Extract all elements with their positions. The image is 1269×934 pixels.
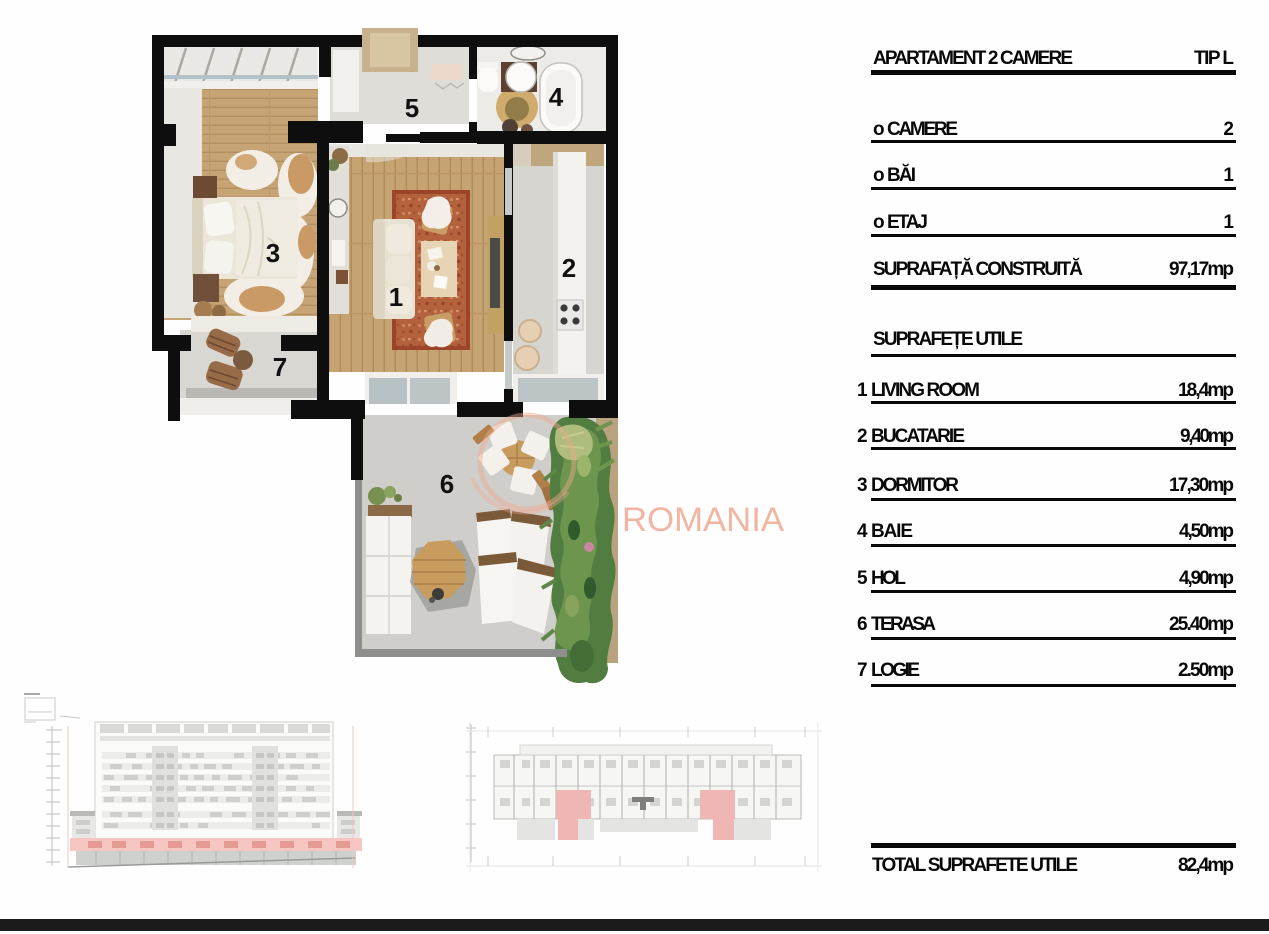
svg-text:o: o [873,119,885,140]
svg-text:4,50mp: 4,50mp [1179,521,1234,542]
svg-text:ROMANIA: ROMANIA [622,501,784,539]
svg-text:2: 2 [857,426,868,447]
svg-text:TERASA: TERASA [871,614,936,635]
svg-text:5: 5 [857,568,868,589]
svg-text:7: 7 [857,660,868,681]
svg-text:6: 6 [440,469,454,499]
svg-text:LOGIE: LOGIE [871,660,920,681]
svg-text:2: 2 [1223,119,1234,140]
svg-text:BĂI: BĂI [887,164,916,186]
svg-text:1: 1 [857,380,868,401]
svg-text:17,30mp: 17,30mp [1169,475,1234,496]
svg-text:9,40mp: 9,40mp [1180,426,1234,447]
svg-text:HOL: HOL [871,568,906,589]
svg-text:82,4mp: 82,4mp [1178,855,1234,876]
svg-text:5: 5 [405,93,419,123]
svg-text:APARTAMENT 2 CAMERE: APARTAMENT 2 CAMERE [873,48,1073,69]
svg-text:1: 1 [1223,212,1234,233]
svg-text:97,17mp: 97,17mp [1169,259,1234,280]
svg-text:SUPRAFAȚĂ CONSTRUITĂ: SUPRAFAȚĂ CONSTRUITĂ [873,258,1083,280]
svg-text:2.50mp: 2.50mp [1178,660,1234,681]
svg-text:ETAJ: ETAJ [887,212,928,233]
svg-text:4: 4 [549,82,564,112]
svg-text:BUCATARIE: BUCATARIE [871,426,965,447]
svg-text:6: 6 [857,614,868,635]
svg-text:3: 3 [266,238,280,268]
svg-text:TOTAL SUPRAFETE UTILE: TOTAL SUPRAFETE UTILE [872,855,1078,876]
svg-text:o: o [873,165,885,186]
svg-text:LIVING ROOM: LIVING ROOM [871,380,980,401]
svg-text:BAIE: BAIE [871,521,913,542]
svg-text:1: 1 [389,282,403,312]
svg-text:3: 3 [857,475,868,496]
svg-text:TIP L: TIP L [1194,48,1234,69]
svg-text:7: 7 [273,352,287,382]
svg-text:18,4mp: 18,4mp [1178,380,1234,401]
svg-text:25.40mp: 25.40mp [1169,614,1234,635]
svg-text:DORMITOR: DORMITOR [871,475,959,496]
svg-text:2: 2 [562,253,576,283]
svg-text:1: 1 [1223,165,1234,186]
svg-text:4,90mp: 4,90mp [1179,568,1234,589]
svg-text:o: o [873,212,885,233]
svg-text:4: 4 [857,521,868,542]
svg-text:SUPRAFEȚE UTILE: SUPRAFEȚE UTILE [873,329,1023,350]
svg-text:CAMERE: CAMERE [887,119,958,140]
